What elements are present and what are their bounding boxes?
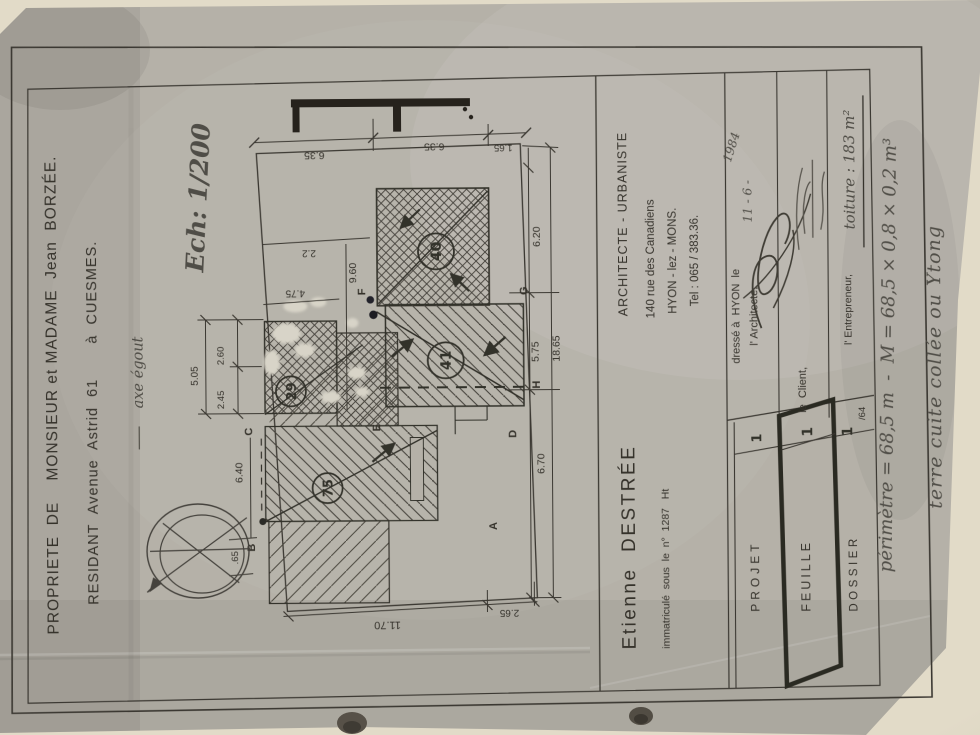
point-b-dot xyxy=(259,518,266,525)
sewer-axis-note: axe égout xyxy=(131,336,148,408)
dim-top2: 6.35 xyxy=(424,140,445,152)
dim-6-20: 6.20 xyxy=(531,226,543,247)
dim-11-70: 11.70 xyxy=(374,619,401,631)
projet-value: 1 xyxy=(750,434,765,443)
dim-18-65: 18.65 xyxy=(551,335,563,362)
architect-name: Etienne DESTRÉE xyxy=(618,445,640,650)
mark-40: 40 xyxy=(429,241,445,261)
mark-29: 29 xyxy=(285,382,300,400)
point-E: E xyxy=(371,424,383,431)
owner-line1: PROPRIETE DE MONSIEUR et MADAME Jean BOR… xyxy=(42,156,62,635)
feuille-value: 1 xyxy=(800,427,816,437)
dim-9-60: 9.60 xyxy=(347,263,359,284)
owner-line2: RESIDANT Avenue Astrid 61 à CUESMES. xyxy=(84,241,103,605)
architect-profession: ARCHITECTE - URBANISTE xyxy=(615,132,630,317)
point-D: D xyxy=(507,430,519,438)
architect-phone: Tel : 065 / 383.36. xyxy=(689,215,702,307)
dim-5-05: 5.05 xyxy=(190,366,201,386)
architect-registration: immatriculé sous le n° 1287 Ht xyxy=(660,489,673,649)
material-note: terre cuite collée ou Ytong xyxy=(923,225,947,509)
client-label: le Client, xyxy=(797,367,809,413)
mark-41: 41 xyxy=(439,351,455,371)
photo-of-plan: PROPRIETE DE MONSIEUR et MADAME Jean BOR… xyxy=(0,0,980,735)
terrace-block xyxy=(269,521,390,604)
point-G: G xyxy=(518,286,530,295)
architect-sign-label: l' Architecte, xyxy=(748,287,760,346)
dim-2-2: 2.2 xyxy=(302,247,316,258)
drawn-at-label: dressé à HYON le xyxy=(730,269,743,364)
dossier-value: 1 xyxy=(840,427,856,437)
point-H: H xyxy=(531,381,543,389)
ink-dot xyxy=(366,296,374,304)
projet-label: PROJET xyxy=(748,540,762,611)
point-C: C xyxy=(243,428,255,436)
mark-75: 75 xyxy=(322,479,337,497)
dim-4-75: 4.75 xyxy=(285,287,305,298)
contractor-label: l' Entrepreneur, xyxy=(842,274,854,345)
date-handwritten: 11 - 6 - xyxy=(740,180,754,223)
chimney-slot xyxy=(410,437,423,500)
ink-dot xyxy=(369,311,377,319)
dim-2-65: 2.65 xyxy=(499,607,519,618)
point-A: A xyxy=(488,522,500,530)
dim-top1: 6.35 xyxy=(304,149,325,161)
scanned-plan: PROPRIETE DE MONSIEUR et MADAME Jean BOR… xyxy=(0,0,980,735)
dim-top3: 1.65 xyxy=(494,142,513,153)
dim-6-70: 6.70 xyxy=(535,453,547,474)
dim-2-45: 2.45 xyxy=(216,391,227,410)
architect-address: 140 rue des Canadiens xyxy=(645,199,658,318)
roof-area-note: toiture : 183 m² xyxy=(840,110,859,230)
building-block-41 xyxy=(385,304,524,407)
dim-6-40: 6.40 xyxy=(233,462,245,483)
dim-0-65: .65 xyxy=(230,551,241,564)
wall-dot xyxy=(469,115,473,119)
feuille-label: FEUILLE xyxy=(799,540,814,612)
point-F: F xyxy=(356,288,368,295)
dossier-index: /64 xyxy=(857,407,868,420)
point-B: B xyxy=(246,544,258,552)
dim-2-60: 2.60 xyxy=(216,347,227,366)
architect-city: HYON - lez - MONS. xyxy=(667,208,680,314)
wall-dot xyxy=(463,107,467,111)
dossier-label: DOSSIER xyxy=(848,535,861,611)
dim-5-75: 5.75 xyxy=(530,341,542,362)
